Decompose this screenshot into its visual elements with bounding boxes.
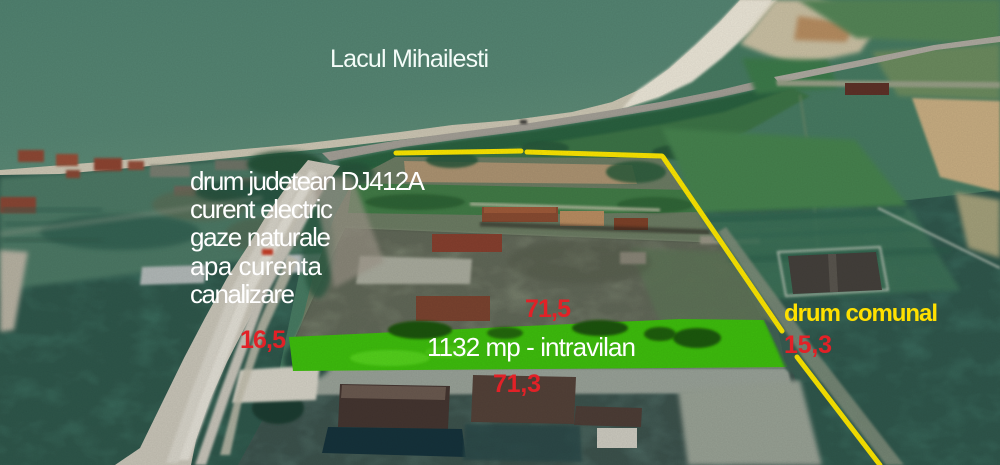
svg-text:16,5: 16,5 bbox=[240, 326, 286, 354]
svg-text:Lacul Mihailesti: Lacul Mihailesti bbox=[330, 45, 489, 73]
svg-text:gaze naturale: gaze naturale bbox=[190, 222, 331, 252]
svg-text:drum comunal: drum comunal bbox=[784, 300, 938, 327]
svg-text:71,3: 71,3 bbox=[493, 370, 541, 398]
svg-text:curent electric: curent electric bbox=[190, 194, 333, 224]
svg-text:apa curenta: apa curenta bbox=[190, 251, 323, 281]
svg-text:71,5: 71,5 bbox=[525, 295, 571, 323]
svg-text:canalizare: canalizare bbox=[190, 279, 295, 309]
svg-text:15,3: 15,3 bbox=[784, 331, 832, 359]
svg-text:drum judetean DJ412A: drum judetean DJ412A bbox=[190, 166, 426, 196]
svg-text:1132 mp - intravilan: 1132 mp - intravilan bbox=[427, 332, 636, 362]
